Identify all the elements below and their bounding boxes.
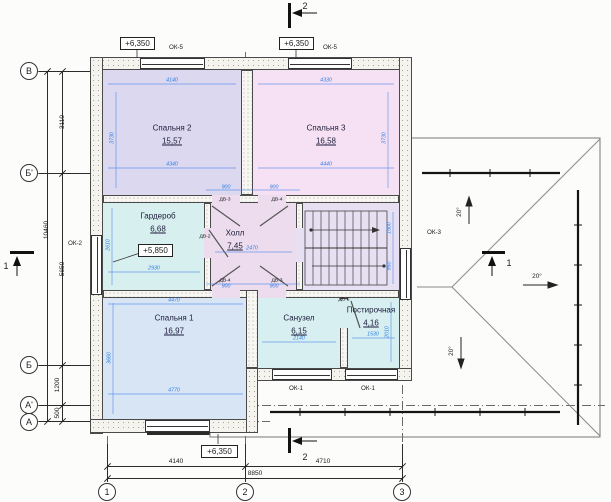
- window-label-ok5-right: ОК-5: [323, 43, 337, 50]
- elevation-value: +5,850: [143, 246, 168, 255]
- dim-label-1200: 1200: [53, 377, 60, 393]
- blue-dimension-label: 4770: [168, 387, 180, 393]
- blue-dimension-label: 4330: [320, 77, 332, 83]
- dim-label-5650: 5650: [58, 261, 65, 277]
- blue-dimension-label: 2140: [293, 335, 305, 341]
- room-name-bedroom2: Спальня 2: [153, 124, 192, 133]
- window-label-ok3: ОК-3: [427, 228, 441, 235]
- room-area-hall: 7,45: [227, 242, 243, 251]
- section-marker-1-left: [10, 251, 34, 276]
- wall-right: [399, 57, 412, 381]
- room-area-bedroom3: 16,58: [316, 137, 336, 146]
- section-label-1-left: 1: [3, 261, 8, 271]
- window-label-ok1-left: ОК-1: [289, 384, 303, 391]
- floor-plan-drawing: В Б' Б А' А 1 2 3 3110 5650 1200 500 104…: [0, 0, 611, 502]
- room-name-bedroom1: Спальня 1: [155, 314, 194, 323]
- window-label-ok2: ОК-2: [68, 239, 82, 246]
- room-name-bathroom: Санузел: [283, 314, 314, 323]
- dim-label-500: 500: [53, 407, 60, 420]
- dim-label-8850: 8850: [247, 469, 263, 476]
- wall-bedroom1-bathroom: [246, 290, 258, 368]
- axis-label: А: [26, 417, 32, 427]
- blue-dimension-label: 4470: [168, 297, 180, 303]
- blue-dimension-label: 900: [270, 184, 279, 190]
- slope-arrow-right: [523, 282, 557, 288]
- axis-circle-a1: А': [20, 396, 38, 414]
- elevation-value: +6,350: [125, 39, 150, 48]
- axis-label: 2: [242, 487, 247, 497]
- axis-label: Б': [25, 168, 33, 178]
- blue-dimension-label: 3730: [109, 132, 115, 144]
- blue-dimension-label: 2470: [246, 245, 258, 251]
- window-label-ok1-right: ОК-1: [361, 384, 375, 391]
- roof-hip-se: [452, 287, 600, 436]
- section-label-2-top: 2: [302, 1, 307, 11]
- door-label-dv2: ДВ-2: [199, 233, 210, 239]
- section-marker-1-roof: [482, 251, 505, 276]
- wall-upper-middle: [103, 195, 399, 203]
- elevation-mark-bottom: +6,350: [201, 445, 238, 458]
- dim-label-4140: 4140: [168, 457, 184, 464]
- door-opening: [296, 228, 303, 262]
- blue-dimension-label: 1500: [386, 222, 392, 234]
- elevation-mark-top-right: +6,350: [279, 37, 314, 50]
- slope-arrow-down: [458, 337, 464, 368]
- axis-circle-v: В: [20, 62, 38, 80]
- blue-dimension-label: 4340: [166, 161, 178, 167]
- door-label-dv5: ДВ-5: [338, 296, 349, 302]
- dim-label-4710: 4710: [315, 457, 331, 464]
- window-ok3: [400, 248, 411, 300]
- window-ok5-left: [140, 58, 205, 69]
- dim-label-3110: 3110: [58, 114, 65, 130]
- blue-dimension-label: 4140: [166, 77, 178, 83]
- room-stairs: [303, 203, 399, 290]
- room-name-laundry: Постирочная: [347, 306, 395, 315]
- blue-dimension-label: 900: [222, 184, 231, 190]
- room-area-bedroom2: 15,57: [162, 137, 182, 146]
- door-label-dv3-top: ДВ-3: [219, 196, 230, 202]
- axis-circle-2: 2: [236, 483, 254, 501]
- room-name-hall: Холл: [226, 229, 245, 238]
- roof-slope-label-down: 20°: [447, 346, 454, 356]
- axis-circle-a: А: [20, 413, 38, 431]
- blue-dimension-label: 4440: [320, 161, 332, 167]
- axis-circle-3: 3: [393, 483, 411, 501]
- axis-label: Б: [26, 360, 32, 370]
- window-bottom: [145, 420, 210, 432]
- axis-circle-1: 1: [98, 483, 116, 501]
- room-bedroom2: [103, 70, 241, 195]
- blue-dimension-label: 2610: [105, 239, 111, 251]
- blue-dimension-label: 2930: [148, 265, 160, 271]
- dimension-line-left-outer: [47, 71, 48, 421]
- wall-bedroom2-3: [241, 70, 253, 195]
- elevation-mark-top-left: +6,350: [120, 37, 155, 50]
- room-area-bedroom1: 16,97: [164, 327, 184, 336]
- section-label-1-roof: 1: [506, 258, 511, 268]
- axis-label: 1: [104, 487, 109, 497]
- dim-label-10460: 10460: [42, 220, 49, 240]
- section-marker-2-bottom: [288, 428, 317, 453]
- elevation-value: +6,350: [284, 39, 309, 48]
- axis-circle-b1: Б': [20, 164, 38, 182]
- window-label-ok5-left: ОК-5: [169, 43, 183, 50]
- axis-circle-b: Б: [20, 356, 38, 374]
- room-area-laundry: 4,16: [363, 319, 379, 328]
- blue-dimension-label: 1530: [367, 331, 379, 337]
- roof-hip-ne: [452, 139, 600, 287]
- roof-slope-label-right: 20°: [532, 272, 542, 279]
- elevation-mark-wardrobe: +5,850: [138, 244, 173, 257]
- wall-top: [90, 57, 412, 70]
- blue-dimension-label: 3730: [381, 132, 387, 144]
- extension-line: [245, 444, 246, 482]
- door-opening: [258, 290, 286, 298]
- blue-dimension-label: 3660: [106, 352, 112, 364]
- section-label-2-bottom: 2: [302, 452, 307, 462]
- axis-label: А': [25, 400, 33, 410]
- dimension-line-bottom-outer: [107, 478, 402, 479]
- blue-dimension-label: 900: [222, 283, 231, 289]
- dimension-line-bottom-inner: [107, 466, 402, 467]
- room-bedroom3: [253, 70, 399, 195]
- blue-dimension-label: 900: [270, 283, 279, 289]
- window-ok1-left: [272, 369, 332, 380]
- elevation-value: +6,350: [207, 447, 232, 456]
- balcony-threshold: [147, 432, 210, 435]
- room-name-bedroom3: Спальня 3: [307, 124, 346, 133]
- window-ok2: [91, 235, 102, 295]
- slope-arrow-up: [466, 197, 472, 224]
- axis-label: 3: [399, 487, 404, 497]
- room-area-wardrobe: 6,68: [150, 225, 166, 234]
- blue-dimension-label: 950: [386, 262, 392, 271]
- door-label-dv4-bottom: ДВ-4: [219, 277, 230, 283]
- door-label-dv4-top: ДВ-4: [271, 196, 282, 202]
- axis-label: В: [26, 66, 32, 76]
- window-ok1-right: [345, 369, 398, 380]
- roof-slope-label-up: 20°: [455, 207, 462, 217]
- room-name-wardrobe: Гардероб: [140, 212, 175, 221]
- door-opening: [212, 290, 240, 298]
- wall-step: [246, 368, 258, 433]
- door-label-dv3-bottom: ДВ-3: [271, 277, 282, 283]
- window-ok5-right: [288, 58, 352, 69]
- blue-dimension-label: 2010: [384, 326, 390, 338]
